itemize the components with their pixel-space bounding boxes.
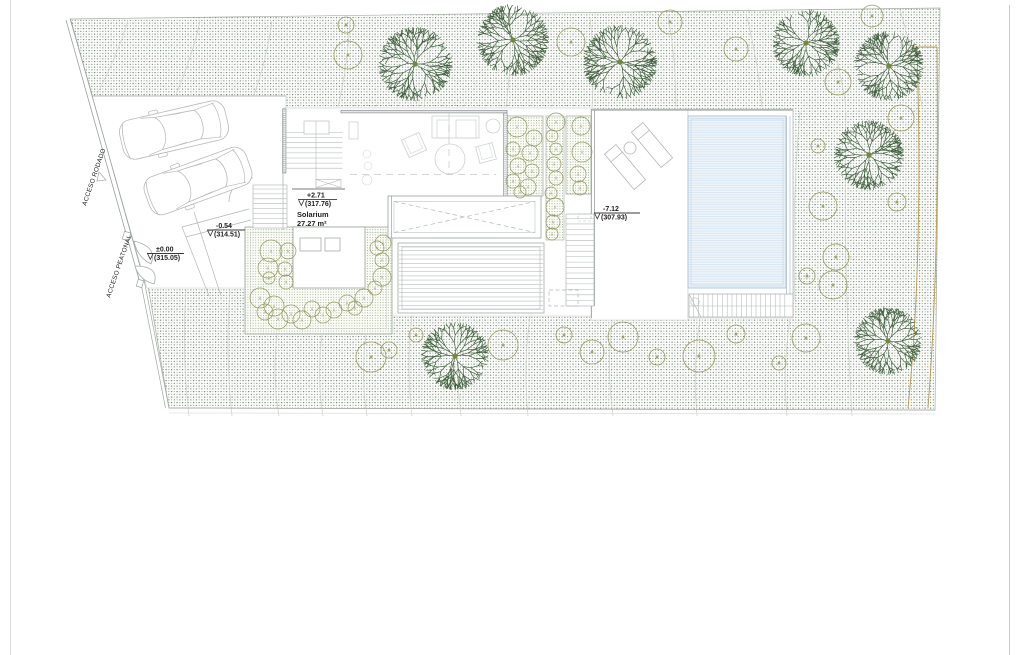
svg-text:27.27 m²: 27.27 m² <box>297 219 327 228</box>
svg-text:(315.05): (315.05) <box>154 255 180 262</box>
svg-text:Solarium: Solarium <box>297 210 329 219</box>
svg-text:-7.12: -7.12 <box>603 206 619 213</box>
svg-text:(314.51): (314.51) <box>214 231 240 238</box>
svg-text:+2.71: +2.71 <box>307 193 325 200</box>
svg-text:(317.76): (317.76) <box>305 201 331 208</box>
svg-text:(307.93): (307.93) <box>601 214 627 221</box>
svg-text:±0.00: ±0.00 <box>156 247 174 254</box>
svg-text:-0.54: -0.54 <box>216 223 232 230</box>
